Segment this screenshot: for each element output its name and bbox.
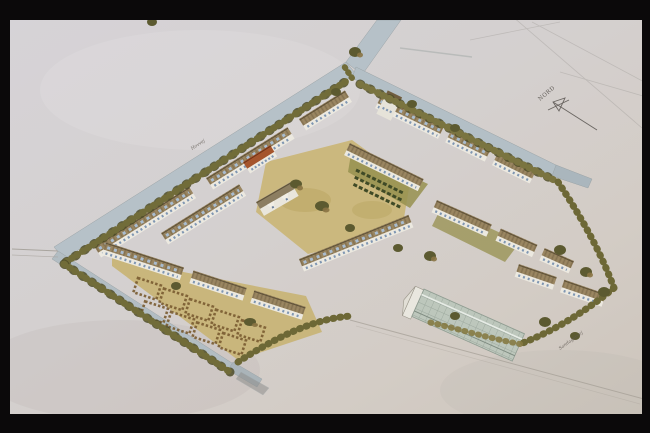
artwork-canvas: NORD Hovvej Sandagervej: [0, 0, 650, 433]
slide-photo: NORD Hovvej Sandagervej: [0, 0, 650, 433]
